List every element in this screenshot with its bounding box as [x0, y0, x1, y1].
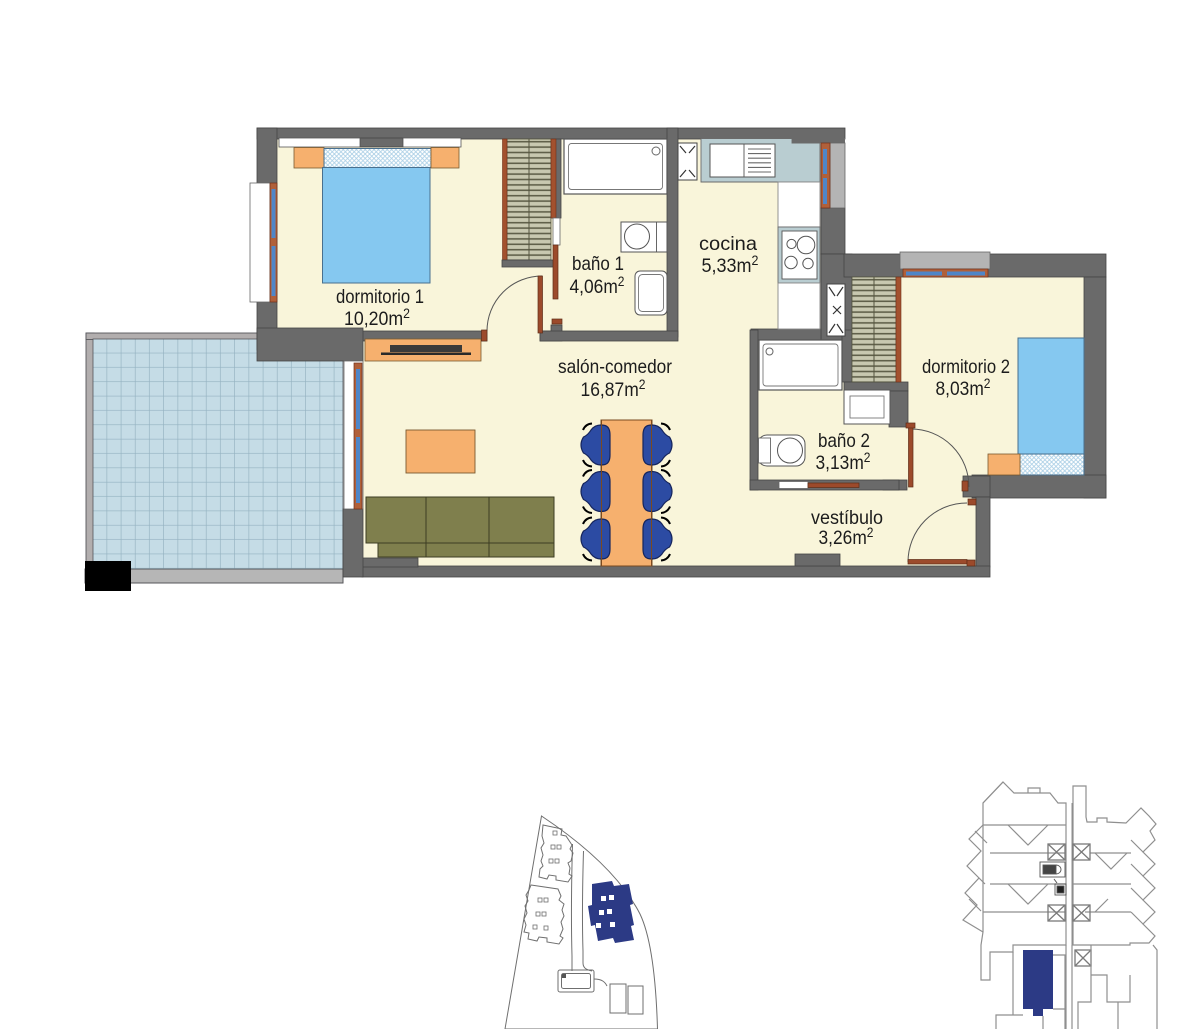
svg-text:8,03m2: 8,03m2 — [936, 376, 991, 400]
svg-text:dormitorio 2: dormitorio 2 — [922, 356, 1010, 378]
svg-text:dormitorio 1: dormitorio 1 — [336, 286, 424, 308]
svg-text:baño 2: baño 2 — [818, 430, 870, 452]
svg-text:4,06m2: 4,06m2 — [570, 274, 625, 298]
svg-text:3,26m2: 3,26m2 — [819, 525, 874, 549]
svg-text:5,33m2: 5,33m2 — [702, 253, 759, 277]
svg-text:baño 1: baño 1 — [572, 253, 624, 275]
svg-text:salón-comedor: salón-comedor — [558, 356, 672, 378]
svg-text:16,87m2: 16,87m2 — [581, 377, 646, 401]
svg-text:10,20m2: 10,20m2 — [344, 306, 410, 330]
svg-text:3,13m2: 3,13m2 — [816, 450, 871, 474]
svg-text:cocina: cocina — [699, 233, 757, 255]
